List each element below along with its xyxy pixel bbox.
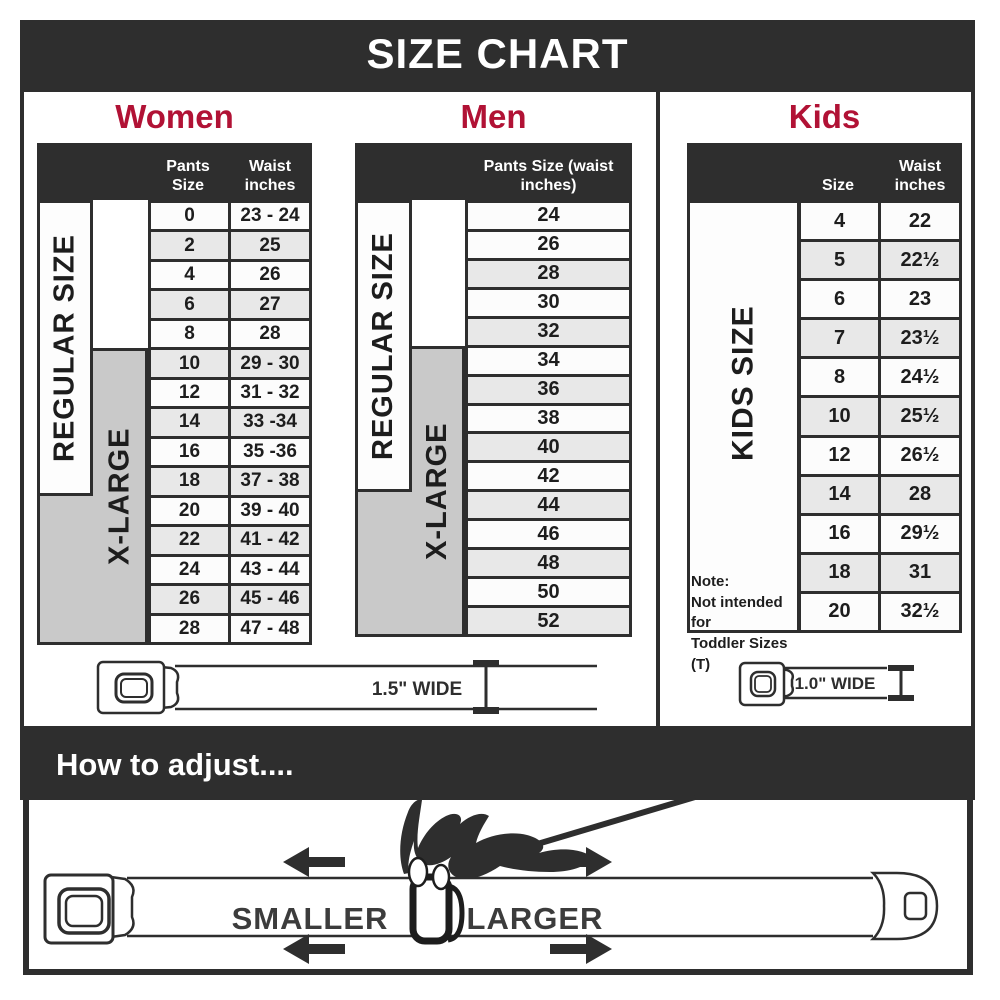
width-marker-icon [888, 695, 914, 701]
men-regular-label: REGULAR SIZE [358, 203, 409, 489]
pants-size-cell: 52 [468, 608, 629, 634]
arrow-left-icon [283, 934, 345, 964]
pants-size-cell: 32 [468, 319, 629, 345]
waist-cell: 29½ [881, 516, 959, 552]
size-cell: 8 [801, 359, 878, 395]
buckle-body [740, 663, 784, 705]
waist-cell: 25½ [881, 398, 959, 434]
pants-size-cell: 22 [151, 527, 228, 553]
larger-label: LARGER [467, 901, 604, 936]
waist-cell: 26½ [881, 438, 959, 474]
pants-size-cell: 46 [468, 521, 629, 547]
waist-cell: 22 [881, 203, 959, 239]
page-title: SIZE CHART [20, 20, 975, 88]
waist-cell: 47 - 48 [231, 616, 309, 642]
pants-size-cell: 34 [468, 348, 629, 374]
pants-size-cell: 26 [151, 586, 228, 612]
pants-size-cell: 18 [151, 468, 228, 494]
size-cell: 10 [801, 398, 878, 434]
kids-section-title: Kids [687, 92, 962, 142]
men-section-title: Men [355, 92, 632, 142]
smaller-label: SMALLER [232, 901, 389, 936]
pants-size-cell: 26 [468, 232, 629, 258]
section-divider [656, 88, 660, 730]
waist-cell: 23 [881, 281, 959, 317]
kids-table-header: Size Waist inches [687, 143, 962, 200]
pants-size-cell: 48 [468, 550, 629, 576]
pants-size-cell: 24 [151, 557, 228, 583]
waist-cell: 23 - 24 [231, 203, 309, 229]
width-marker-icon [888, 665, 914, 671]
kids-note-line: Not intended for [691, 593, 799, 634]
pants-size-cell: 50 [468, 579, 629, 605]
waist-cell: 41 - 42 [231, 527, 309, 553]
pants-size-cell: 42 [468, 463, 629, 489]
pants-size-cell: 8 [151, 321, 228, 347]
fingertip [409, 858, 427, 886]
size-cell: 20 [801, 594, 878, 630]
pants-size-cell: 28 [468, 261, 629, 287]
men-col-header: Pants Size (waist inches) [467, 158, 630, 195]
pants-size-cell: 38 [468, 406, 629, 432]
kids-size-label: KIDS SIZE [690, 203, 797, 563]
women-regular-label: REGULAR SIZE [40, 203, 90, 493]
pants-size-cell: 44 [468, 492, 629, 518]
waist-cell: 26 [231, 262, 309, 288]
pants-size-cell: 24 [468, 203, 629, 229]
size-cell: 16 [801, 516, 878, 552]
pants-size-cell: 6 [151, 291, 228, 317]
arrow-right-icon [550, 934, 612, 964]
men-size-table: 242628303234363840424446485052 [465, 200, 632, 637]
width-marker-icon [473, 660, 499, 667]
pants-size-cell: 2 [151, 232, 228, 258]
waist-cell: 28 [231, 321, 309, 347]
kids-size-table: 422522½623723½824½1025½1226½14281629½183… [798, 200, 962, 633]
waist-cell: 27 [231, 291, 309, 317]
adult-belt-illustration: 1.5" WIDE [95, 652, 605, 724]
size-chart-page: SIZE CHART Women Men Kids Pants Size Wai… [0, 0, 1000, 1000]
pants-size-cell: 30 [468, 290, 629, 316]
hand-icon [400, 800, 593, 879]
waist-cell: 31 [881, 555, 959, 591]
pants-size-cell: 20 [151, 498, 228, 524]
waist-cell: 33 -34 [231, 409, 309, 435]
size-cell: 6 [801, 281, 878, 317]
women-regular-box: REGULAR SIZE [37, 200, 93, 496]
belt-width-label: 1.5" WIDE [372, 679, 462, 700]
kids-col2-header: Waist inches [881, 158, 959, 195]
waist-cell: 39 - 40 [231, 498, 309, 524]
pants-size-cell: 36 [468, 377, 629, 403]
size-cell: 5 [801, 242, 878, 278]
men-xlarge-label: X-LARGE [410, 346, 465, 637]
size-cell: 4 [801, 203, 878, 239]
belt-width-label: 1.0" WIDE [795, 674, 876, 693]
waist-cell: 45 - 46 [231, 586, 309, 612]
women-table-header: Pants Size Waist inches [37, 143, 312, 200]
waist-cell: 23½ [881, 320, 959, 356]
width-marker-icon [900, 671, 903, 695]
kids-size-box: KIDS SIZE [687, 200, 800, 633]
men-table-header: Pants Size (waist inches) [355, 143, 632, 200]
adjust-illustration: SMALLER LARGER [27, 800, 972, 972]
fingertip [433, 865, 449, 889]
pants-size-cell: 4 [151, 262, 228, 288]
width-marker-icon [485, 667, 488, 707]
kids-note-line: Note: [691, 572, 799, 593]
waist-cell: 25 [231, 232, 309, 258]
waist-cell: 35 -36 [231, 439, 309, 465]
waist-cell: 22½ [881, 242, 959, 278]
women-section-title: Women [37, 92, 312, 142]
size-cell: 12 [801, 438, 878, 474]
size-cell: 7 [801, 320, 878, 356]
pants-size-cell: 0 [151, 203, 228, 229]
waist-cell: 32½ [881, 594, 959, 630]
women-col2-header: Waist inches [231, 158, 309, 195]
women-size-table: 023 - 242254266278281029 - 301231 - 3214… [148, 200, 312, 645]
pants-size-cell: 16 [151, 439, 228, 465]
size-cell: 14 [801, 477, 878, 513]
width-marker-icon [473, 707, 499, 714]
pants-size-cell: 10 [151, 350, 228, 376]
adjust-heading: How to adjust.... [20, 730, 975, 800]
kids-col1-header: Size [798, 177, 878, 195]
waist-cell: 24½ [881, 359, 959, 395]
pants-size-cell: 14 [151, 409, 228, 435]
waist-cell: 43 - 44 [231, 557, 309, 583]
pants-size-cell: 12 [151, 380, 228, 406]
kids-belt-illustration: 1.0" WIDE [735, 658, 925, 710]
pants-size-cell: 40 [468, 434, 629, 460]
size-cell: 18 [801, 555, 878, 591]
buckle-body [98, 662, 164, 713]
waist-cell: 37 - 38 [231, 468, 309, 494]
waist-cell: 29 - 30 [231, 350, 309, 376]
women-xlarge-label: X-LARGE [92, 348, 148, 645]
women-col1-header: Pants Size [148, 158, 228, 195]
arrow-left-icon [283, 847, 345, 877]
waist-cell: 31 - 32 [231, 380, 309, 406]
men-regular-box: REGULAR SIZE [355, 200, 412, 492]
waist-cell: 28 [881, 477, 959, 513]
pants-size-cell: 28 [151, 616, 228, 642]
